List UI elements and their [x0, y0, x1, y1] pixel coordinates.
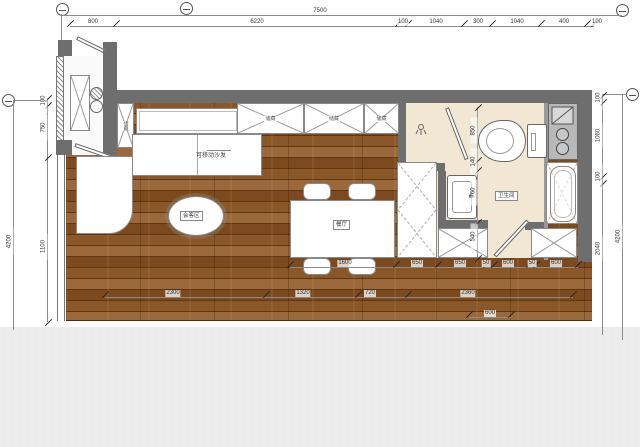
- kitchen-sink: [551, 106, 575, 126]
- dim-col-left: 1007501100: [47, 98, 48, 322]
- dim-label-total: 7500: [312, 8, 327, 15]
- grid-bubble: [626, 88, 639, 101]
- dim-tick: [45, 154, 52, 161]
- dim-col-left-outer: 4200: [13, 100, 14, 330]
- storage-label: 储藏: [122, 121, 130, 131]
- toilet: [478, 120, 526, 162]
- dim-label: 400: [558, 19, 570, 26]
- dim-label: 100: [591, 19, 603, 26]
- dining-label: 餐厅: [333, 220, 350, 230]
- dim-label: 100: [397, 19, 409, 26]
- stove-burner: [556, 128, 569, 141]
- stove-burner: [556, 142, 569, 155]
- entry-lower-block: [56, 140, 72, 155]
- dim-label: 300: [472, 19, 484, 26]
- dim-row-a: 16006506505060050600: [290, 267, 578, 268]
- dim-label: 1040: [428, 19, 443, 26]
- dining-chair: [303, 183, 331, 200]
- entry-column: [58, 40, 72, 56]
- media-console: [136, 108, 240, 134]
- dining-chair: [348, 183, 376, 200]
- grid-leader: [602, 94, 627, 95]
- dim-label: 600: [502, 260, 514, 267]
- dim-col-right-outer: 4200: [622, 95, 623, 340]
- dim-label: 1100: [41, 234, 48, 260]
- dim-tick: [113, 20, 120, 27]
- dim-label: 760: [471, 180, 478, 206]
- dim-tick: [489, 20, 496, 27]
- sofa-label: 可移动沙发: [196, 153, 226, 160]
- dim-tick: [538, 20, 545, 27]
- bathroom-label: 卫生间: [495, 191, 518, 201]
- dim-row-c: 600: [469, 317, 511, 318]
- insulated-wall: [56, 56, 64, 142]
- entry-door: [76, 36, 105, 53]
- dim-tick: [45, 319, 52, 326]
- dim-label: 2040: [596, 236, 603, 262]
- dim-label: 1320: [295, 290, 310, 297]
- dim-label: 750: [41, 115, 48, 141]
- dim-row-total: 7500: [62, 15, 622, 16]
- dim-label: 100: [596, 164, 603, 190]
- dim-tick: [67, 20, 74, 27]
- dim-label: 2360: [460, 290, 475, 297]
- grid-bubble: [180, 2, 193, 15]
- entry-wall-stub: [103, 42, 117, 155]
- bathtub: [546, 162, 578, 224]
- dim-label: 100: [596, 85, 603, 111]
- dim-label: 6220: [249, 19, 264, 26]
- dim-label: 720: [364, 290, 376, 297]
- wardrobe-cabinet: [70, 75, 90, 131]
- dim-label: 540: [471, 224, 478, 250]
- grid-leader: [61, 14, 62, 40]
- dim-label: 600: [550, 260, 562, 267]
- shower-left-wall: [398, 103, 406, 171]
- dim-label: 4200: [616, 224, 623, 250]
- dim-col-bath: 850140760540: [477, 107, 478, 258]
- paper-margin: [0, 327, 640, 447]
- dim-label: 2300: [165, 290, 180, 297]
- dim-row-top: 800622010010403001040400100: [70, 26, 594, 27]
- dim-label: 1040: [509, 19, 524, 26]
- shower-head-icon: [414, 122, 430, 138]
- basin-storage-cabinet: [438, 228, 488, 258]
- stool: [90, 100, 103, 113]
- dim-label: 4200: [7, 229, 14, 255]
- dim-label: 1600: [337, 260, 352, 267]
- dim-label: 1060: [596, 123, 603, 149]
- dim-label: 50: [528, 260, 537, 267]
- storage-cabinet-right: [531, 228, 577, 258]
- meeting-area-label: 会客区: [180, 211, 203, 221]
- dim-label: 600: [484, 310, 496, 317]
- dim-col-right: 10010601002040: [602, 95, 603, 335]
- toilet-tank: [527, 124, 547, 158]
- dim-label: 800: [87, 19, 99, 26]
- dim-label: 50: [482, 260, 491, 267]
- sofa-label-leader: [207, 150, 231, 151]
- dim-label: 100: [41, 88, 48, 114]
- stool: [90, 87, 103, 100]
- left-window-wall: [57, 155, 65, 321]
- dim-row-b: 230013207202360: [105, 297, 573, 298]
- sofa-chaise: [76, 156, 133, 234]
- right-wall: [578, 90, 592, 262]
- dim-label: 650: [411, 260, 423, 267]
- dim-label: 850: [471, 118, 478, 144]
- dim-tick: [461, 20, 468, 27]
- floor-plan-canvas: 储藏 可移动沙发 会客区 储藏 储藏 储藏 餐: [0, 0, 640, 447]
- dim-label: 650: [454, 260, 466, 267]
- tall-cabinet: [397, 162, 437, 258]
- top-wall: [103, 90, 592, 103]
- kitchen-counter: [548, 103, 578, 160]
- dim-label: 140: [471, 149, 478, 175]
